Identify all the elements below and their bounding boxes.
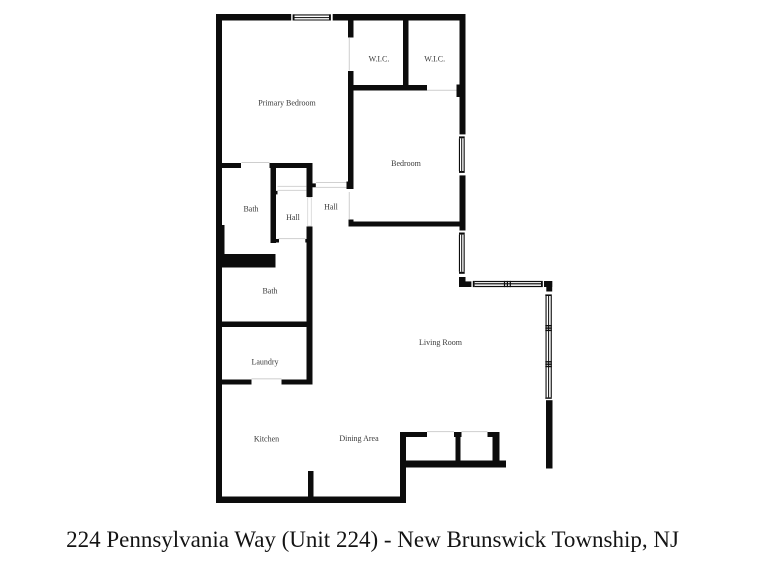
svg-text:Living Room: Living Room — [419, 338, 463, 347]
svg-text:224 Pennsylvania Way (Unit 224: 224 Pennsylvania Way (Unit 224) - New Br… — [66, 527, 679, 552]
svg-text:Hall: Hall — [286, 213, 301, 222]
svg-text:Laundry: Laundry — [251, 357, 278, 366]
svg-text:Bath: Bath — [262, 286, 277, 295]
svg-text:W.I.C.: W.I.C. — [369, 54, 390, 63]
svg-text:W.I.C.: W.I.C. — [424, 54, 445, 63]
svg-text:Kitchen: Kitchen — [254, 434, 279, 443]
svg-text:Bath: Bath — [243, 204, 258, 213]
svg-text:Dining Area: Dining Area — [339, 434, 379, 443]
svg-text:Bedroom: Bedroom — [391, 159, 422, 168]
svg-text:Hall: Hall — [324, 202, 339, 211]
svg-text:Primary Bedroom: Primary Bedroom — [258, 99, 316, 108]
